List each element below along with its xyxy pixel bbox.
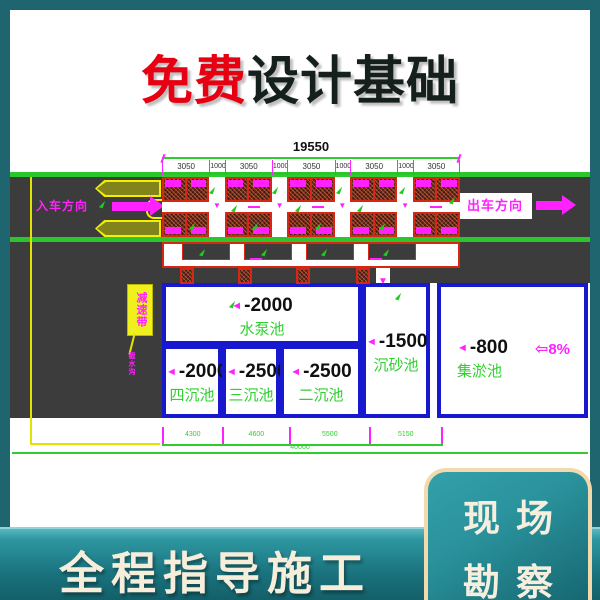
drain-stub — [238, 268, 252, 284]
dimension-segment: 3050 — [350, 160, 397, 175]
dimension-segments-row: 305010003050100030501000305010003050 — [162, 160, 460, 177]
channel-island — [306, 244, 354, 260]
title-rest: 设计基础 — [247, 53, 459, 111]
drain-stub — [296, 268, 310, 284]
boundary-line-horizontal — [30, 443, 160, 445]
entry-direction-label: 入车方向 — [36, 197, 88, 214]
dimension-segment: 3050 — [287, 160, 334, 175]
down-arrow-icon: ▼ — [213, 201, 221, 210]
title-highlight: 免费 — [141, 53, 247, 111]
pool-second-sediment: ◄-2500 二沉池 — [280, 345, 362, 418]
dimension-segment: 1000 — [397, 160, 412, 175]
promo-image: 免费设计基础 入车方向 出车方向 19550 30501000305010003… — [0, 0, 600, 600]
flow-dash-icon — [430, 206, 442, 208]
dimension-total-bottom: 40000 — [150, 444, 450, 451]
dimension-segment: 4300 — [162, 427, 222, 444]
drain-stub — [356, 268, 370, 284]
ramp-callout: 减速带 — [127, 284, 153, 336]
flow-dash-icon — [312, 206, 324, 208]
drain-stub — [180, 268, 194, 284]
pool-sand-settling: ◄-1500 沉砂池 — [362, 283, 430, 418]
dimension-segment: 3050 — [225, 160, 272, 175]
exit-arrow-icon — [536, 201, 562, 210]
dimension-segment: 1000 — [335, 160, 350, 175]
channel-island — [182, 244, 230, 260]
dimension-segment: 5500 — [289, 427, 368, 444]
down-arrow-icon: ▼ — [276, 201, 284, 210]
page-title: 免费设计基础 — [10, 54, 590, 111]
dimension-segment: 1000 — [209, 160, 224, 175]
dimension-total-top: 19550 — [162, 139, 460, 154]
dimension-segment: 4600 — [222, 427, 290, 444]
footer-banner: 全程指导施工 — [0, 537, 430, 600]
depth-marker-icon: ◄ — [166, 366, 177, 378]
down-arrow-icon: ▼ — [338, 201, 346, 210]
pool-third-sediment: ◄-2500 三沉池 — [222, 345, 280, 418]
pool-fourth-sediment: ◄-2000 四沉池 — [162, 345, 222, 418]
flow-dash-icon — [248, 206, 260, 208]
dimension-line-top — [162, 157, 460, 159]
down-arrow-icon: ▼ — [401, 201, 409, 210]
site-survey-badge: 现场 勘察 — [424, 468, 592, 600]
collector-channel — [162, 242, 460, 268]
dimension-line-bottom — [12, 452, 588, 454]
traffic-island-bottom — [95, 220, 161, 237]
wash-pit-grid: ▼▼▼▼ — [162, 177, 460, 237]
depth-marker-icon: ◄ — [366, 336, 377, 348]
depth-marker-icon: ◄ — [457, 342, 468, 354]
flow-dash-icon — [250, 258, 262, 260]
dimension-segment: 1000 — [272, 160, 287, 175]
wash-pit-block — [287, 177, 334, 237]
badge-line2: 勘察 — [428, 552, 588, 600]
dimension-segment: 3050 — [413, 160, 460, 175]
depth-marker-icon: ◄ — [226, 366, 237, 378]
badge-line1: 现场 — [428, 488, 588, 542]
slope-label: ⇦8% — [535, 339, 570, 359]
traffic-island-top — [95, 180, 161, 197]
dimension-segment: 5150 — [369, 427, 441, 444]
ditch-label: 截水沟 — [126, 352, 136, 376]
depth-marker-icon: ◄ — [290, 366, 301, 378]
dimension-segment: 3050 — [162, 160, 209, 175]
wash-pit-block — [162, 177, 209, 237]
pool-sludge-collect: ◄-800 集淤池 ⇦8% — [437, 283, 588, 418]
entry-arrow-icon — [112, 202, 150, 211]
pool-pump: ◄-2000 水泵池 — [162, 283, 362, 345]
flow-dash-icon — [370, 258, 382, 260]
slope-arrow-icon: ⇦ — [535, 341, 548, 358]
boundary-line-vertical — [30, 177, 32, 443]
exit-direction-label: 出车方向 — [458, 193, 532, 219]
